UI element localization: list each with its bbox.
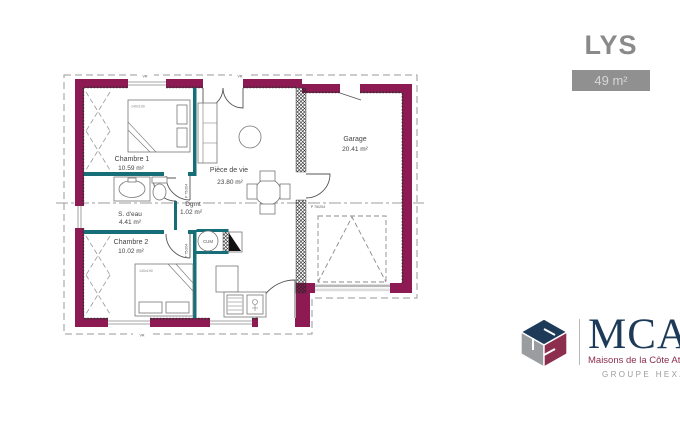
room-area-garage: 20.41 m²	[342, 146, 368, 153]
area-badge: 49 m²	[572, 70, 650, 91]
garage-door-symbol	[318, 216, 386, 282]
logo-tagline: Maisons de la Côte Atlantique	[588, 355, 680, 366]
room-area-dgmt: 1.02 m²	[180, 209, 203, 216]
logo-text: MCA Maisons de la Côte Atlantique GROUPE…	[588, 316, 680, 379]
door-size-chambre2: P 75/204	[185, 244, 189, 258]
kitchen-furniture: CUM	[198, 231, 266, 317]
door-size-chambre1: P 75/204	[185, 184, 189, 198]
mca-cube-icon	[517, 316, 571, 370]
door-size-garage: P 75/204	[311, 205, 325, 209]
room-label-sdeau: S. d'eau	[118, 211, 142, 218]
bathroom-fixtures	[114, 177, 167, 201]
logo-brand: MCA	[588, 316, 680, 354]
room-label-chambre1: Chambre 1	[115, 156, 150, 163]
water-heater-label: CUM	[203, 239, 213, 244]
shutter-label-1: VR	[143, 75, 148, 79]
room-label-chambre2: Chambre 2	[114, 239, 149, 246]
logo-group: GROUPE HEXA	[602, 370, 680, 379]
room-label-garage: Garage	[343, 136, 366, 143]
plan-header: LYS 49 m²	[572, 30, 650, 91]
room-area-chambre2: 10.02 m²	[118, 248, 144, 255]
mca-logo: MCA Maisons de la Côte Atlantique GROUPE…	[517, 316, 680, 379]
room-area-chambre1: 10.59 m²	[118, 165, 144, 172]
shutter-label-3: VR	[140, 334, 145, 338]
room-area-piece-de-vie: 23.80 m²	[217, 179, 243, 186]
plan-title: LYS	[572, 30, 650, 61]
room-label-dgmt: Dgmt	[185, 201, 201, 208]
bed1-size-label: 140x190	[131, 105, 145, 109]
bed2-size-label: 140x190	[139, 269, 153, 273]
living-room-furniture	[198, 103, 290, 214]
room-area-sdeau: 4.41 m²	[119, 219, 142, 226]
shutter-label-2: VR	[238, 75, 243, 79]
room-label-piece-de-vie: Pièce de vie	[210, 167, 248, 174]
logo-divider	[579, 319, 580, 365]
